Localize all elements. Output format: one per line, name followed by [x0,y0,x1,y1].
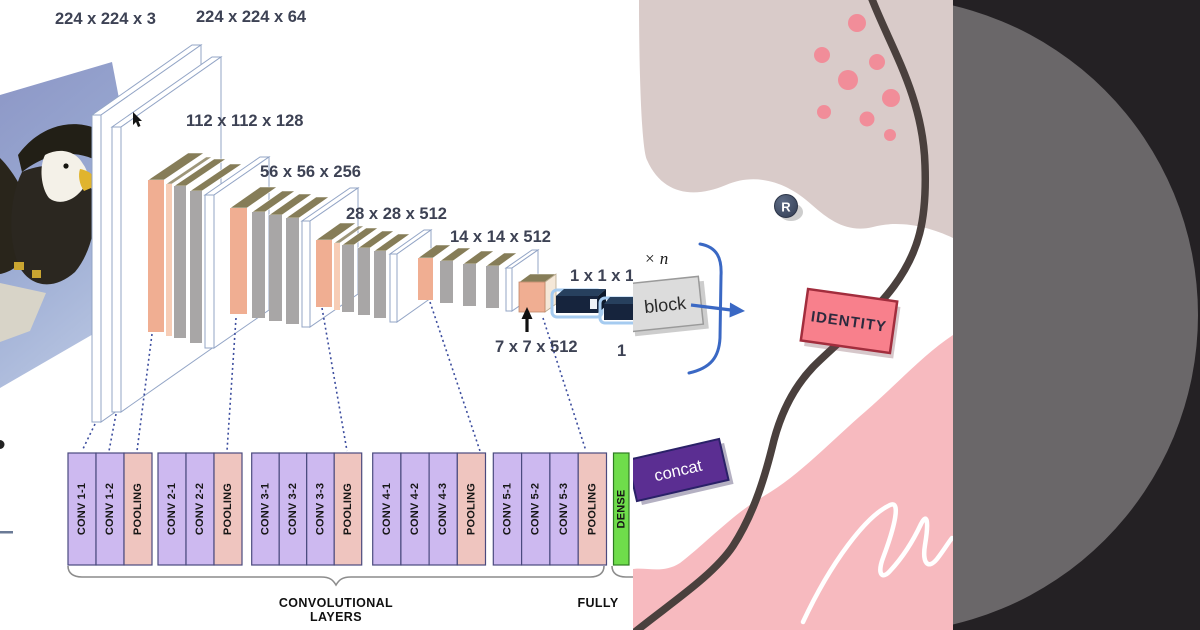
svg-text:POOLING: POOLING [465,483,477,535]
bullet-artifact [0,440,5,449]
svg-text:CONV 1-2: CONV 1-2 [104,483,116,535]
layer-box-pooling1: POOLING [124,453,152,565]
dim-label-block4: 28 x 28 x 512 [346,205,447,223]
svg-text:POOLING: POOLING [132,483,144,535]
repeat-label: × n [644,249,668,268]
layer-box-pooling4: POOLING [457,453,485,565]
svg-text:CONV 5-1: CONV 5-1 [501,483,513,535]
convolutional-brace [68,566,604,585]
layer-box-pooling5: POOLING [578,453,606,565]
dim-label-block1: 224 x 224 x 64 [196,8,307,26]
fully-connected-label: FULLY [577,596,618,610]
svg-text:CONV 3-3: CONV 3-3 [315,483,327,535]
layer-box-conv4-1: CONV 4-1 [373,453,401,565]
layer-box-pooling2: POOLING [214,453,242,565]
svg-text:POOLING: POOLING [586,483,598,535]
layer-box-conv5-2: CONV 5-2 [522,453,550,565]
fully-connected-brace [612,566,633,577]
layer-box-conv3-3: CONV 3-3 [307,453,335,565]
svg-text:POOLING: POOLING [222,483,234,535]
layer-box-dense: DENSE [614,453,630,565]
layer-box-conv5-3: CONV 5-3 [550,453,578,565]
dim-label-block3: 56 x 56 x 256 [260,163,361,181]
dim-label-block5: 14 x 14 x 512 [450,228,551,246]
svg-text:POOLING: POOLING [342,483,354,535]
svg-text:CONV 2-1: CONV 2-1 [166,483,178,535]
line-artifact [0,531,13,534]
convolutional-layers-label-line1: CONVOLUTIONAL [279,596,393,610]
dim-label-pool5: 7 x 7 x 512 [495,338,578,356]
registered-badge-letter: R [781,200,791,215]
vgg-diagram-svg: 224 x 224 x 3 224 x 224 x 64 112 x 112 x… [0,0,633,630]
layer-box-conv4-2: CONV 4-2 [401,453,429,565]
layer-box-conv1-2: CONV 1-2 [96,453,124,565]
svg-text:CONV 3-1: CONV 3-1 [260,483,272,535]
layer-box-conv2-2: CONV 2-2 [186,453,214,565]
dim-label-fc2: 1 [617,342,626,360]
layer-box-conv3-2: CONV 3-2 [279,453,307,565]
decorative-poster: R × n block IDENTITY [633,0,953,630]
dim-label-block2: 112 x 112 x 128 [186,112,303,130]
svg-text:DENSE: DENSE [615,490,627,529]
svg-text:CONV 1-1: CONV 1-1 [76,483,88,535]
poster-svg: R × n block IDENTITY [633,0,953,630]
svg-text:CONV 2-2: CONV 2-2 [194,483,206,535]
svg-text:CONV 5-2: CONV 5-2 [530,483,542,535]
registered-badge: R [775,195,804,222]
svg-text:CONV 4-2: CONV 4-2 [409,483,421,535]
identity-tag: IDENTITY [800,289,901,359]
layer-box-conv3-1: CONV 3-1 [252,453,280,565]
layer-box-conv5-1: CONV 5-1 [493,453,521,565]
svg-text:CONV 3-2: CONV 3-2 [287,483,299,535]
gray-circle [953,0,1198,630]
concat-tag: concat [633,438,734,506]
dim-label-fc: 1 x 1 x 1 [570,267,633,285]
layer-box-conv1-1: CONV 1-1 [68,453,96,565]
svg-text:CONV 4-3: CONV 4-3 [437,483,449,535]
social-card: 224 x 224 x 3 224 x 224 x 64 112 x 112 x… [0,0,1200,630]
layer-box-row: CONV 1-1 CONV 1-2 POOLING CONV 2-1 CONV … [68,453,629,565]
fc-bars [552,289,633,323]
dim-label-input: 224 x 224 x 3 [55,10,156,28]
layer-box-conv4-3: CONV 4-3 [429,453,457,565]
convolutional-layers-label-line2: LAYERS [310,610,362,624]
vgg-architecture-diagram: 224 x 224 x 3 224 x 224 x 64 112 x 112 x… [0,0,633,630]
svg-text:CONV 4-1: CONV 4-1 [381,483,393,535]
pool5-cube [519,274,556,312]
dark-panel [953,0,1200,630]
layer-box-conv2-1: CONV 2-1 [158,453,186,565]
svg-text:CONV 5-3: CONV 5-3 [558,483,570,535]
layer-box-pooling3: POOLING [334,453,362,565]
